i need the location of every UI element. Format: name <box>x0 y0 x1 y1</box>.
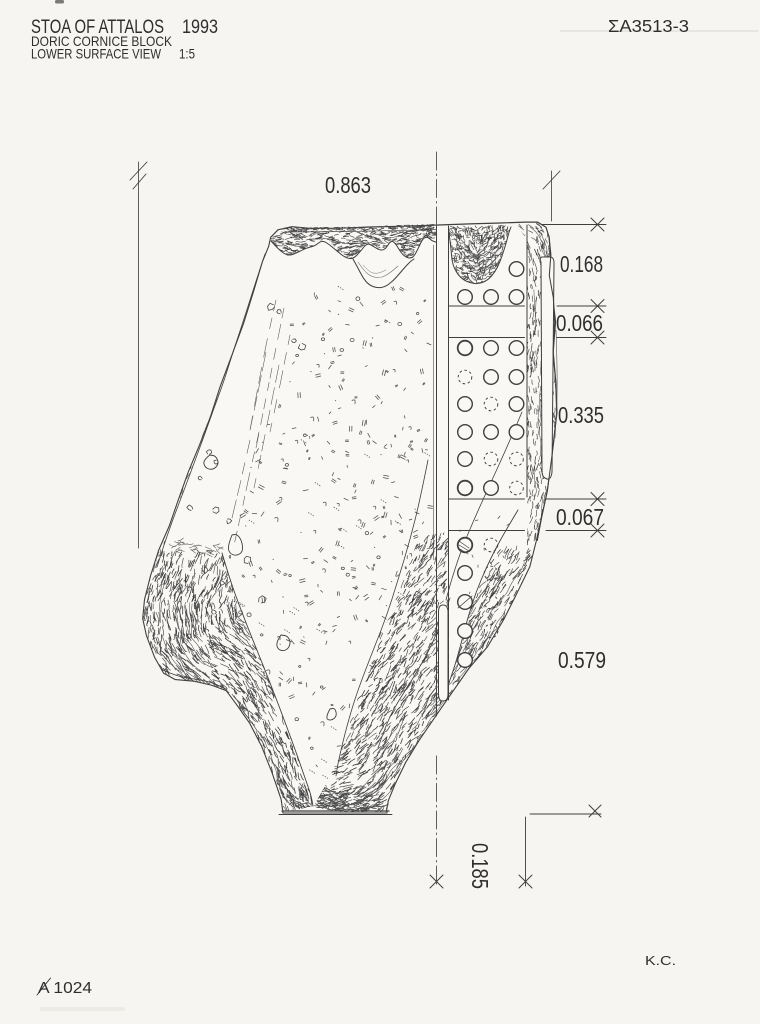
svg-text:1:5: 1:5 <box>179 46 195 62</box>
svg-text:K.C.: K.C. <box>645 954 676 968</box>
svg-text:ΣA3513-3: ΣA3513-3 <box>608 16 689 36</box>
svg-text:0.067: 0.067 <box>556 504 604 530</box>
svg-text:0.185: 0.185 <box>467 843 493 889</box>
svg-text:0.863: 0.863 <box>325 172 371 198</box>
svg-text:0.579: 0.579 <box>558 647 606 673</box>
svg-text:0.168: 0.168 <box>560 251 603 277</box>
svg-text:0.335: 0.335 <box>558 402 604 428</box>
svg-text:LOWER SURFACE VIEW: LOWER SURFACE VIEW <box>31 46 162 62</box>
svg-text:0.066: 0.066 <box>556 310 603 336</box>
svg-text:A 1024: A 1024 <box>38 980 92 997</box>
svg-text:1993: 1993 <box>182 17 218 38</box>
